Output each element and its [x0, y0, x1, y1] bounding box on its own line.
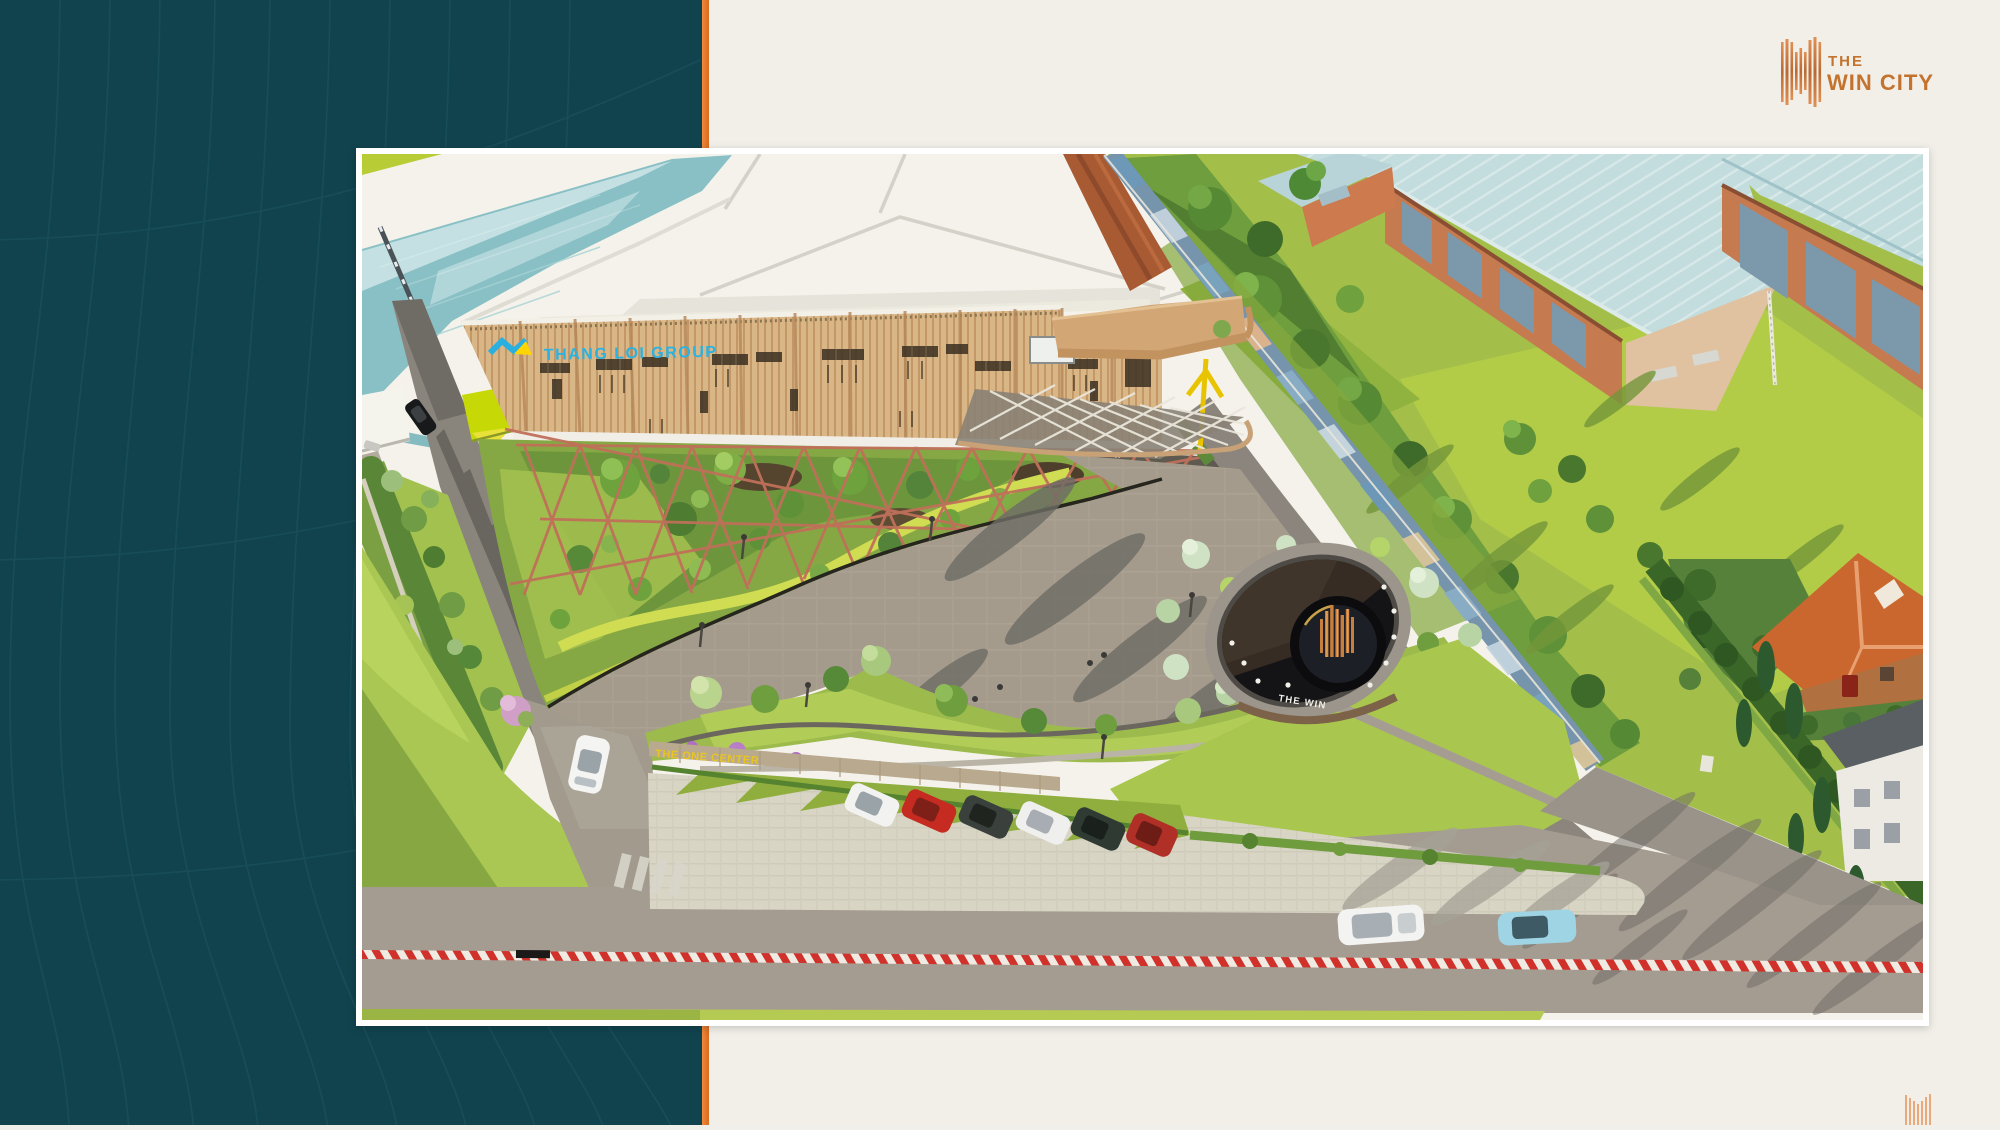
svg-text:WIN CITY: WIN CITY [1827, 70, 1934, 95]
svg-text:THE: THE [1828, 53, 1864, 70]
svg-text:THANG LOI GROUP: THANG LOI GROUP [544, 344, 718, 364]
